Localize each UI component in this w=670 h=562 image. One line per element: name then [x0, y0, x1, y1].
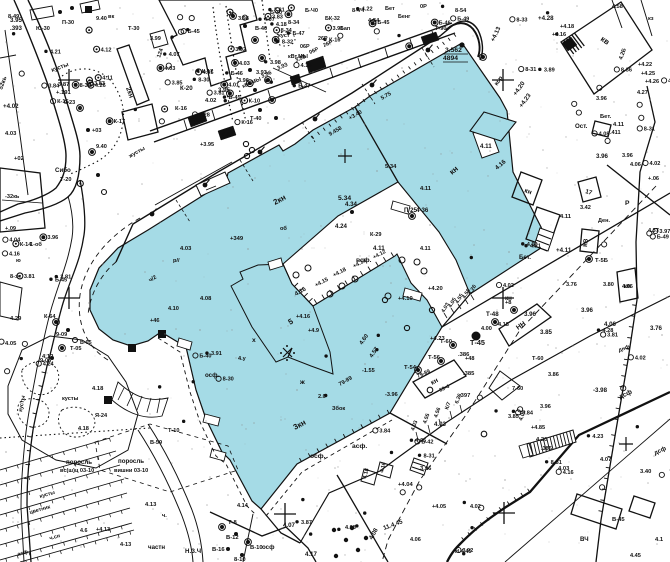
- svg-text:4.11: 4.11: [560, 214, 572, 220]
- svg-text:4.03: 4.03: [180, 246, 192, 252]
- svg-text:об: об: [280, 225, 287, 232]
- svg-text:+349: +349: [230, 236, 244, 242]
- svg-text:3.81: 3.81: [607, 333, 618, 339]
- svg-text:+4.85: +4.85: [531, 425, 545, 431]
- svg-text:3.81: 3.81: [24, 274, 35, 280]
- svg-text:4.11: 4.11: [613, 122, 625, 128]
- svg-text:Т-40: Т-40: [250, 116, 262, 122]
- svg-text:4.06: 4.06: [410, 537, 421, 543]
- svg-text:КВ: КВ: [582, 238, 590, 247]
- svg-text:Бенг: Бенг: [398, 14, 411, 20]
- svg-text:8-30: 8-30: [198, 77, 209, 83]
- svg-text:4.29: 4.29: [10, 316, 22, 322]
- svg-text:К-20: К-20: [180, 85, 193, 92]
- svg-text:4.06: 4.06: [604, 321, 617, 328]
- svg-text:9-09: 9-09: [56, 332, 67, 338]
- svg-text:4.16: 4.16: [9, 251, 20, 257]
- svg-text:Ост.: Ост.: [575, 123, 588, 130]
- svg-text:К-29: К-29: [370, 232, 382, 238]
- svg-text:-3.98: -3.98: [593, 387, 608, 394]
- svg-text:Б-47: Б-47: [298, 84, 310, 90]
- svg-text:Т-5Б: Т-5Б: [595, 258, 608, 264]
- svg-text:+4.16: +4.16: [552, 32, 566, 38]
- svg-text:+.191: +.191: [56, 90, 71, 96]
- svg-text:4.6: 4.6: [80, 528, 87, 534]
- svg-text:вишни 03-10: вишни 03-10: [114, 468, 148, 474]
- svg-text:4.08: 4.08: [200, 296, 212, 302]
- svg-text:8-31: 8-31: [644, 126, 655, 132]
- svg-text:ж: ж: [299, 379, 305, 386]
- svg-text:8-54: 8-54: [455, 8, 467, 14]
- svg-text:Б-45: Б-45: [377, 20, 389, 26]
- svg-text:3.76: 3.76: [566, 282, 577, 288]
- svg-text:3.80: 3.80: [603, 282, 614, 288]
- svg-text:4.03: 4.03: [239, 61, 250, 67]
- svg-text:4.1: 4.1: [655, 537, 664, 543]
- svg-text:8-зч: 8-зч: [10, 274, 21, 280]
- svg-text:Т-8: Т-8: [228, 520, 237, 526]
- svg-text:В-12: В-12: [226, 535, 239, 541]
- svg-text:+4.10: +4.10: [398, 296, 413, 302]
- svg-text:4.12: 4.12: [42, 354, 53, 360]
- svg-text:3.95: 3.95: [218, 87, 231, 94]
- svg-text:8-34: 8-34: [80, 83, 92, 89]
- svg-text:3.87: 3.87: [58, 82, 69, 88]
- svg-text:3.96: 3.96: [47, 235, 58, 241]
- svg-text:8-34: 8-34: [288, 20, 300, 26]
- svg-text:3.86: 3.86: [548, 372, 559, 378]
- svg-text:Б-45: Б-45: [228, 95, 240, 101]
- svg-text:4.18: 4.18: [78, 426, 89, 432]
- svg-text:В-10: В-10: [250, 545, 263, 551]
- svg-text:8-31: 8-31: [424, 453, 435, 459]
- svg-text:+.09: +.09: [5, 226, 16, 232]
- svg-text:4.07: 4.07: [264, 17, 275, 23]
- svg-text:4.07: 4.07: [169, 52, 180, 58]
- svg-text:4.02: 4.02: [205, 98, 216, 104]
- svg-text:частн: частн: [148, 544, 165, 551]
- svg-text:4.02: 4.02: [635, 355, 646, 361]
- svg-text:5.34: 5.34: [385, 164, 397, 170]
- svg-text:4-13: 4-13: [120, 542, 131, 548]
- svg-text:х: х: [252, 337, 256, 344]
- svg-text:4.02: 4.02: [470, 504, 481, 510]
- svg-text:+4.22: +4.22: [638, 62, 652, 68]
- svg-text:+4.9: +4.9: [308, 328, 319, 334]
- svg-text:+03: +03: [92, 128, 102, 134]
- svg-text:3.81: 3.81: [60, 275, 71, 281]
- svg-text:3.91: 3.91: [211, 351, 222, 357]
- svg-text:+02: +02: [14, 156, 24, 162]
- svg-text:Т-45: Т-45: [470, 338, 485, 347]
- svg-text:3.40: 3.40: [640, 469, 651, 475]
- svg-text:4.у: 4.у: [238, 356, 247, 362]
- svg-text:.411: .411: [610, 130, 621, 136]
- svg-text:Б-42: Б-42: [421, 439, 433, 445]
- svg-text:Т-48: Т-48: [486, 311, 499, 318]
- svg-text:4.11: 4.11: [480, 143, 492, 150]
- svg-text:4.58: 4.58: [612, 4, 623, 10]
- svg-text:4.24: 4.24: [335, 223, 348, 230]
- svg-text:4894: 4894: [443, 55, 458, 62]
- svg-text:4.03: 4.03: [558, 466, 570, 472]
- svg-text:+4.13: +4.13: [96, 527, 110, 533]
- svg-text:Б-Ч0: Б-Ч0: [305, 8, 318, 14]
- svg-text:вc(ш)ц 03-10: вc(ш)ц 03-10: [60, 468, 94, 474]
- svg-text:4.03: 4.03: [5, 131, 17, 137]
- svg-text:Т-10: Т-10: [168, 428, 180, 434]
- svg-text:+3.95: +3.95: [200, 142, 214, 148]
- svg-text:3.96: 3.96: [524, 311, 537, 318]
- svg-text:В-05: В-05: [80, 340, 92, 346]
- svg-text:Т-90: Т-90: [435, 26, 447, 32]
- svg-text:4-54: 4-54: [368, 18, 380, 24]
- svg-text:К-17: К-17: [114, 119, 126, 125]
- svg-text:осф: осф: [262, 544, 275, 551]
- svg-text:Б-30: Б-30: [270, 10, 282, 16]
- svg-text:3.84: 3.84: [522, 410, 534, 416]
- svg-text:4.03: 4.03: [434, 421, 447, 428]
- svg-text:4.10: 4.10: [527, 242, 538, 248]
- svg-text:4.18: 4.18: [498, 322, 509, 328]
- svg-text:К-64: К-64: [44, 314, 56, 320]
- svg-text:Сибо: Сибо: [55, 167, 71, 174]
- svg-text:4.00: 4.00: [481, 326, 492, 332]
- svg-text:3.96: 3.96: [596, 153, 609, 160]
- svg-text:осф.: осф.: [205, 372, 219, 379]
- svg-text:В-40: В-40: [255, 26, 267, 32]
- svg-text:1-об: 1-об: [30, 241, 42, 248]
- svg-text:Б-49: Б-49: [457, 16, 469, 22]
- svg-text:Я-24: Я-24: [95, 413, 108, 419]
- svg-text:кз: кз: [648, 16, 654, 22]
- svg-text:+4.16: +4.16: [296, 314, 310, 320]
- svg-text:9.40: 9.40: [96, 144, 107, 150]
- svg-text:4.24: 4.24: [43, 362, 55, 368]
- svg-text:7-60: 7-60: [512, 386, 523, 392]
- svg-text:П 25: П 25: [404, 207, 418, 214]
- svg-text:В-59: В-59: [150, 440, 162, 446]
- svg-text:В-16: В-16: [212, 547, 225, 553]
- svg-text:4.07: 4.07: [600, 457, 611, 463]
- svg-text:8-32: 8-32: [282, 39, 293, 45]
- svg-text:4.37: 4.37: [648, 228, 659, 234]
- svg-text:3.96: 3.96: [581, 307, 594, 314]
- svg-text:вк: вк: [108, 14, 114, 20]
- svg-text:Т-20: Т-20: [60, 177, 72, 183]
- svg-text:3.96: 3.96: [596, 96, 607, 102]
- svg-text:Т-54: Т-54: [404, 365, 417, 371]
- svg-text:4.08: 4.08: [345, 525, 356, 531]
- svg-text:4.20: 4.20: [536, 437, 547, 443]
- svg-text:4.18: 4.18: [300, 63, 311, 69]
- svg-text:3.89: 3.89: [544, 67, 555, 73]
- svg-text:асф.: асф.: [352, 443, 367, 450]
- svg-text:8-30: 8-30: [223, 377, 234, 383]
- svg-text:ч.: ч.: [162, 513, 167, 519]
- svg-text:+4.18: +4.18: [560, 24, 574, 30]
- svg-text:.385: .385: [541, 446, 552, 452]
- svg-text:+4.23: +4.23: [430, 336, 445, 342]
- svg-text:Бет: Бет: [385, 6, 395, 12]
- svg-text:Р: Р: [625, 200, 630, 207]
- svg-text:Бет.: Бет.: [600, 114, 612, 120]
- svg-text:К-17: К-17: [202, 69, 214, 75]
- svg-text:3.96: 3.96: [420, 466, 432, 472]
- svg-text:+4.05: +4.05: [432, 504, 446, 510]
- svg-text:осф.: осф.: [310, 453, 326, 460]
- svg-text:4-36: 4-36: [416, 207, 429, 214]
- svg-text:+4.04: +4.04: [398, 482, 413, 488]
- svg-text:Ден.: Ден.: [598, 218, 611, 224]
- svg-text:+46: +46: [150, 318, 160, 324]
- svg-text:ВЧ: ВЧ: [580, 536, 589, 543]
- svg-text:П-30: П-30: [62, 20, 74, 26]
- svg-text:+4.20: +4.20: [428, 286, 443, 292]
- svg-text:8-31: 8-31: [551, 460, 562, 466]
- svg-text:4.17: 4.17: [305, 551, 318, 558]
- svg-text:0Р: 0Р: [420, 4, 427, 10]
- svg-text:8-36: 8-36: [621, 67, 632, 73]
- svg-text:4.11: 4.11: [420, 186, 432, 192]
- svg-text:4.18: 4.18: [92, 386, 104, 392]
- svg-text:+4.26: +4.26: [645, 79, 659, 85]
- svg-text:В-45: В-45: [612, 517, 625, 523]
- svg-text:4.06: 4.06: [630, 162, 641, 168]
- svg-text:4.13: 4.13: [145, 502, 157, 508]
- svg-text:3.99: 3.99: [150, 36, 161, 42]
- svg-text:Б-49: Б-49: [657, 235, 669, 241]
- svg-text:4.02: 4.02: [649, 161, 660, 167]
- svg-text:3.98: 3.98: [238, 16, 249, 22]
- svg-text:3.87: 3.87: [301, 520, 312, 526]
- svg-text:-32кь: -32кь: [5, 194, 20, 200]
- svg-text:Т-60: Т-60: [532, 356, 544, 362]
- svg-text:Н.З.Ч: Н.З.Ч: [185, 548, 201, 555]
- svg-text:Б-40: Б-40: [199, 354, 211, 360]
- svg-text:4.23: 4.23: [592, 434, 603, 440]
- svg-text:3.84: 3.84: [379, 428, 391, 434]
- svg-text:4.14: 4.14: [237, 503, 249, 509]
- svg-text:4.34: 4.34: [345, 201, 358, 208]
- svg-text:4.21: 4.21: [50, 49, 61, 55]
- svg-text:.385: .385: [463, 371, 475, 377]
- svg-text:3.76: 3.76: [650, 325, 663, 332]
- svg-text:3.85: 3.85: [508, 414, 519, 420]
- svg-text:2.0: 2.0: [318, 394, 326, 400]
- svg-text:+4.28: +4.28: [538, 15, 554, 22]
- svg-text:Н.4.45: Н.4.45: [455, 549, 471, 555]
- svg-text:куст: куст: [278, 33, 290, 39]
- svg-text:+.06: +.06: [648, 176, 659, 182]
- svg-text:3.83: 3.83: [94, 81, 105, 87]
- svg-text:р//: р//: [173, 258, 180, 264]
- svg-text:4.08: 4.08: [599, 131, 610, 137]
- svg-text:06Р: 06Р: [300, 44, 310, 50]
- svg-text:кн: кн: [505, 295, 512, 302]
- svg-text:4.06: 4.06: [622, 284, 633, 290]
- svg-text:К-15: К-15: [57, 99, 69, 105]
- svg-text:+4.25: +4.25: [641, 71, 655, 77]
- svg-text:Збок: Збок: [332, 405, 345, 412]
- svg-text:4.10: 4.10: [168, 306, 179, 312]
- svg-text:.397: .397: [459, 393, 470, 399]
- svg-text:К-10: К-10: [249, 98, 260, 104]
- svg-text:3.96: 3.96: [540, 404, 551, 410]
- svg-text:3.96: 3.96: [622, 153, 633, 159]
- svg-text:поросль: поросль: [118, 458, 144, 465]
- svg-text:кусты: кусты: [62, 396, 79, 402]
- svg-text:.393: .393: [10, 25, 23, 32]
- svg-text:+4.11: +4.11: [556, 247, 572, 254]
- svg-text:8-10: 8-10: [234, 557, 246, 562]
- svg-text:Г-16: Г-16: [190, 118, 202, 124]
- svg-text:Ю-30: Ю-30: [36, 26, 50, 32]
- svg-text:Т-05: Т-05: [70, 346, 82, 352]
- svg-text:Бет.: Бет.: [519, 254, 531, 261]
- svg-text:Т-30: Т-30: [128, 26, 140, 32]
- svg-text:-3.96: -3.96: [385, 392, 398, 398]
- svg-text:4.11: 4.11: [420, 246, 431, 252]
- svg-text:9.40: 9.40: [96, 16, 107, 22]
- svg-text:3.95: 3.95: [10, 17, 23, 24]
- svg-text:4.88: 4.88: [222, 132, 233, 138]
- svg-text:+48: +48: [465, 356, 475, 362]
- svg-text:4.12: 4.12: [101, 47, 112, 53]
- svg-text:ю: ю: [16, 258, 21, 264]
- svg-text:4.07: 4.07: [283, 522, 296, 529]
- svg-text:3.562: 3.562: [445, 47, 462, 54]
- svg-text:8-4Ч: 8-4Ч: [352, 8, 364, 14]
- svg-text:-1.55: -1.55: [362, 368, 375, 374]
- svg-text:4.45: 4.45: [630, 553, 641, 559]
- svg-text:3.85: 3.85: [540, 329, 553, 336]
- svg-text:8-33: 8-33: [516, 17, 527, 23]
- svg-text:К-16: К-16: [175, 106, 188, 112]
- svg-text:4.02: 4.02: [503, 283, 514, 289]
- svg-text:Бап: Бап: [340, 26, 350, 32]
- svg-text:Б-45: Б-45: [188, 29, 200, 35]
- svg-text:Т-56: Т-56: [428, 355, 441, 361]
- svg-text:8-31: 8-31: [525, 67, 536, 73]
- svg-text:4.05: 4.05: [5, 341, 17, 347]
- svg-text:4.27: 4.27: [637, 90, 648, 96]
